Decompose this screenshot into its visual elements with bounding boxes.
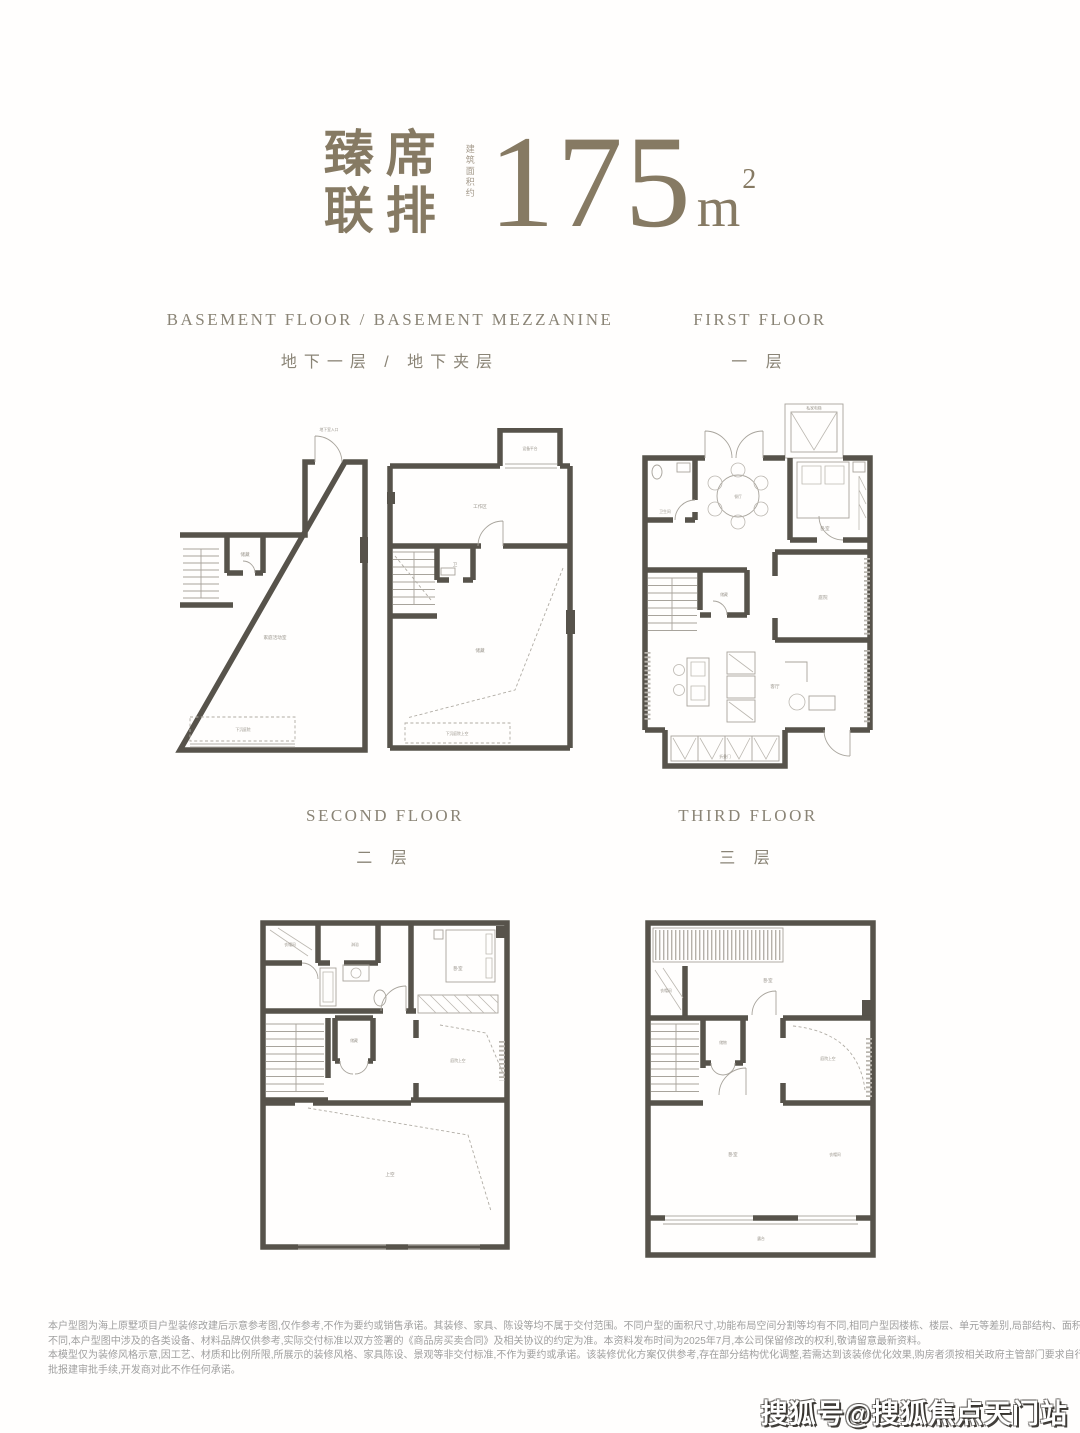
room-label: 庭院 (818, 594, 828, 601)
disclaimer: 本户型图为海上原墅项目户型装修改建后示意参考图,仅作参考,不作为要约或销售承诺。… (48, 1320, 1048, 1378)
room-label: 卧室 (453, 965, 463, 972)
room-label: 卧室 (763, 977, 773, 984)
section-first: FIRST FLOOR 一 层 (610, 310, 910, 372)
watermark: 搜狐号@搜狐焦点天门站 (761, 1392, 1068, 1431)
room-label: 卧室 (820, 525, 830, 532)
room-label: 下沉庭院上空 (446, 731, 469, 736)
room-label: 餐厅 (734, 494, 742, 499)
third-floor-plan: 衣帽间 卧室 储物 庭院上空 卧室 衣帽间 露台 (643, 918, 878, 1260)
area-exponent: 2 (742, 164, 756, 196)
room-label: 储藏 (475, 647, 485, 654)
area-note-vertical: 建筑面积约 (464, 144, 477, 222)
hero: 臻席 联排 建筑面积约 175 m 2 (0, 126, 1080, 240)
room-label: 储藏 (720, 592, 728, 597)
disclaimer-line-3: 本模型仅为装修风格示意,因工艺、材质和比例所限,所展示的装修风格、家具陈设、景观… (48, 1349, 1048, 1364)
room-label: 衣帽间 (284, 942, 296, 947)
room-label: 储藏 (350, 1038, 358, 1043)
section-first-cn: 一 层 (610, 348, 910, 372)
section-basement-cn: 地下一层 / 地下夹层 (110, 348, 670, 372)
disclaimer-line-4: 批报建审批手续,开发商对此不作任何承诺。 (48, 1364, 1048, 1379)
second-floor-plan: 衣帽间 淋浴 卧室 储藏 庭院上空 上空 (258, 918, 512, 1252)
room-label: 上空 (385, 1171, 395, 1177)
area-value: 175 (489, 127, 693, 237)
section-third-cn: 三 层 (598, 844, 898, 868)
room-label: 客厅 (770, 683, 780, 690)
section-basement: BASEMENT FLOOR / BASEMENT MEZZANINE 地下一层… (110, 310, 670, 372)
room-label: 露台 (757, 1236, 765, 1241)
basement-mezzanine-plan: 设备平台 工作区 卫 储藏 下沉庭院上空 (385, 428, 575, 755)
brochure-page: 臻席 联排 建筑面积约 175 m 2 BASEMENT FLOOR / BAS… (0, 0, 1080, 1433)
section-third: THIRD FLOOR 三 层 (598, 806, 898, 868)
room-label: 储藏 (240, 551, 250, 558)
room-label: 衣帽间 (660, 988, 672, 993)
page-title: 臻席 联排 (324, 126, 448, 240)
title-line-2: 联排 (324, 183, 448, 240)
section-basement-en: BASEMENT FLOOR / BASEMENT MEZZANINE (110, 310, 670, 330)
room-label: 卧室 (728, 1151, 738, 1158)
room-label: 折叠门 (719, 754, 731, 759)
room-label: 私家电梯 (806, 406, 821, 411)
area-figure: 175 m 2 (489, 127, 757, 240)
room-label: 卫 (453, 562, 458, 567)
room-label: 家庭活动室 (264, 634, 287, 641)
area-unit: m (697, 176, 741, 240)
room-label: 设备平台 (522, 446, 537, 451)
disclaimer-line-1: 本户型图为海上原墅项目户型装修改建后示意参考图,仅作参考,不作为要约或销售承诺。… (48, 1320, 1048, 1335)
room-label: 卫生间 (659, 509, 671, 514)
room-label: 工作区 (473, 503, 487, 510)
basement-floor-plan: 地下室入口 储藏 家庭活动室 下沉庭院 (175, 425, 370, 755)
disclaimer-line-2: 不同,本户型图中涉及的各类设备、材料品牌仅供参考,实际交付标准以双方签署的《商品… (48, 1335, 1048, 1350)
room-label: 地下室入口 (320, 427, 339, 432)
section-second-cn: 二 层 (185, 844, 585, 868)
section-second: SECOND FLOOR 二 层 (185, 806, 585, 868)
title-line-1: 臻席 (324, 126, 448, 183)
room-label: 储物 (719, 1040, 727, 1045)
room-label: 淋浴 (351, 942, 359, 947)
section-third-en: THIRD FLOOR (598, 806, 898, 826)
section-first-en: FIRST FLOOR (610, 310, 910, 330)
room-label: 衣帽间 (829, 1152, 841, 1157)
section-second-en: SECOND FLOOR (185, 806, 585, 826)
first-floor-plan: 私家电梯 卫生间 餐厅 卧室 储藏 庭院 (635, 400, 880, 785)
room-label: 庭院上空 (450, 1058, 465, 1063)
room-label: 庭院上空 (820, 1056, 835, 1061)
room-label: 下沉庭院 (235, 727, 250, 732)
